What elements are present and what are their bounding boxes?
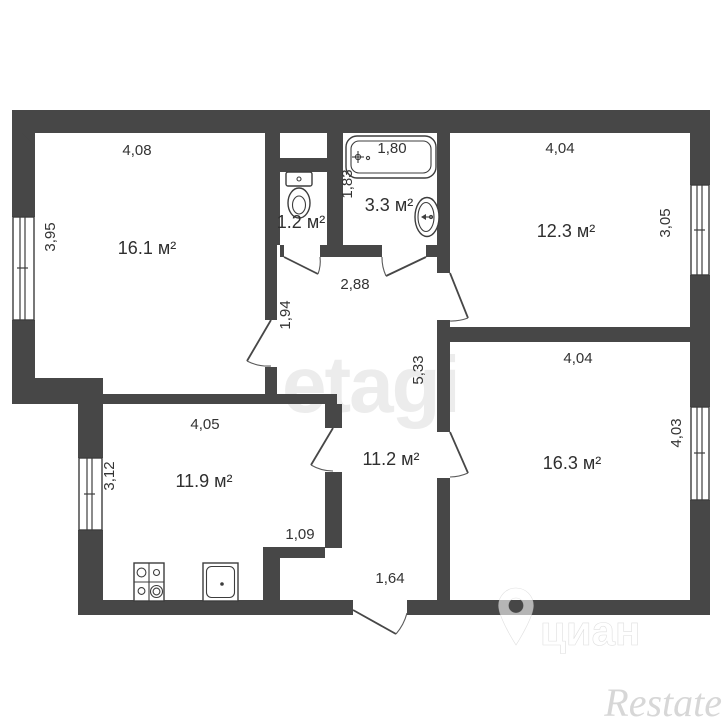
wall-segment: [78, 600, 353, 615]
floor-plan-svg: etagi: [0, 0, 725, 725]
wall-segment: [343, 245, 382, 257]
kitchen-sink-icon: [203, 563, 238, 601]
wall-segment: [263, 547, 325, 558]
dim-bathtub: 1,80: [377, 140, 406, 157]
wall-segment: [437, 478, 450, 600]
dim-bedroom-bottom-right: 4,03: [668, 418, 685, 447]
room-label-bedroom-top: 12.3 м²: [537, 221, 595, 241]
wall-segment: [325, 404, 342, 428]
dim-hall-top: 2,88: [340, 276, 369, 293]
wall-segment: [78, 404, 103, 458]
window-kitchen: [79, 458, 102, 530]
dim-bedroom-top-right: 3,05: [657, 208, 674, 237]
room-label-living: 16.1 м²: [118, 238, 176, 258]
restate-watermark: Restate: [603, 680, 722, 725]
dim-bedroom-bottom-top: 4,04: [563, 350, 592, 367]
wall-segment: [280, 158, 327, 172]
dim-bathroom-left: 1,83: [339, 169, 356, 198]
room-label-bathroom: 3.3 м²: [365, 195, 413, 215]
wall-segment: [450, 327, 690, 342]
window-bedroom-bottom: [691, 407, 709, 500]
room-label-wc: 1.2 м²: [277, 212, 325, 232]
wall-segment: [320, 245, 327, 257]
wall-segment: [690, 500, 710, 615]
window-bedroom-top: [691, 185, 709, 275]
dim-bedroom-top-top: 4,04: [545, 140, 574, 157]
wall-segment: [426, 245, 437, 257]
wall-segment: [690, 110, 710, 185]
room-label-bedroom-bottom: 16.3 м²: [543, 453, 601, 473]
dim-kitchen-left: 3,12: [101, 461, 118, 490]
wall-segment: [280, 245, 284, 257]
dim-living-top: 4,08: [122, 142, 151, 159]
stove-icon: [134, 563, 164, 601]
dim-hall-entry: 1,64: [375, 570, 404, 587]
dim-hall-right: 5,33: [410, 355, 427, 384]
room-label-kitchen: 11.9 м²: [175, 471, 232, 491]
window-living: [13, 217, 34, 320]
wall-segment: [12, 378, 103, 404]
wall-segment: [12, 110, 35, 217]
wall-segment: [12, 110, 710, 133]
dim-hall-left: 1,94: [277, 300, 294, 329]
etagi-watermark: etagi: [282, 340, 459, 429]
room-label-hall: 11.2 м²: [362, 449, 419, 469]
dim-kitchen-nook: 1,09: [285, 526, 314, 543]
bathroom-sink-icon: [415, 198, 439, 237]
dim-kitchen-top: 4,05: [190, 416, 219, 433]
wall-segment: [12, 320, 35, 382]
cian-watermark-text: циан: [540, 607, 640, 654]
wall-segment: [103, 394, 337, 404]
wall-segment: [265, 245, 277, 320]
wall-segment: [437, 320, 450, 432]
wall-segment: [263, 558, 280, 600]
dim-living-left: 3,95: [42, 222, 59, 251]
wall-segment: [437, 133, 450, 273]
floor-plan-image: etagi: [0, 0, 725, 725]
wall-segment: [325, 472, 342, 548]
wall-segment: [690, 275, 710, 407]
